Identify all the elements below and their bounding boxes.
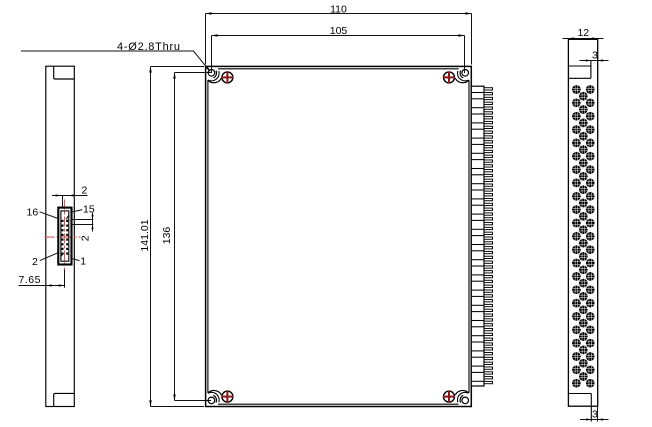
svg-text:141.01: 141.01 bbox=[139, 219, 151, 251]
svg-text:105: 105 bbox=[330, 25, 348, 37]
svg-text:2: 2 bbox=[82, 185, 88, 197]
svg-text:15: 15 bbox=[83, 203, 95, 215]
svg-text:3: 3 bbox=[592, 49, 598, 61]
svg-text:1: 1 bbox=[80, 256, 86, 268]
svg-text:110: 110 bbox=[330, 3, 347, 15]
svg-text:2: 2 bbox=[32, 256, 38, 268]
svg-text:3: 3 bbox=[592, 409, 598, 421]
svg-text:12: 12 bbox=[577, 27, 589, 39]
svg-text:7.65: 7.65 bbox=[19, 274, 41, 286]
svg-text:136: 136 bbox=[161, 227, 173, 245]
svg-text:2: 2 bbox=[80, 235, 92, 241]
svg-text:16: 16 bbox=[27, 206, 39, 218]
